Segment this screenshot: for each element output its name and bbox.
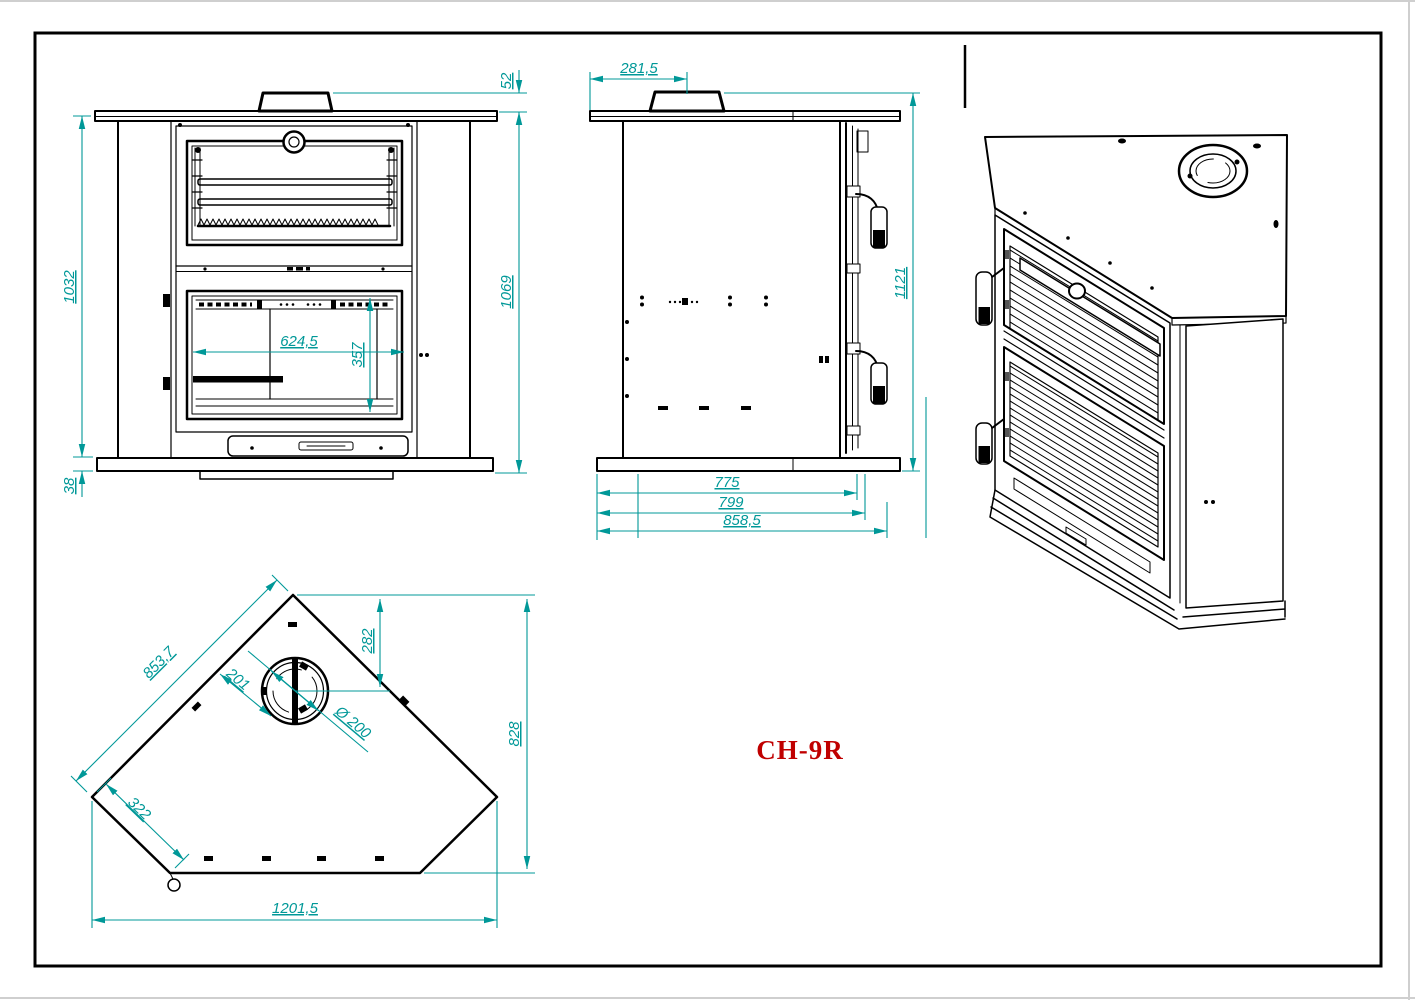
side-panel-fasteners xyxy=(625,296,829,411)
dim-side-depth-mid: 799 xyxy=(718,494,744,511)
front-plinth xyxy=(97,458,493,471)
model-label: CH-9R xyxy=(756,735,844,765)
side-flue-collar xyxy=(650,92,724,111)
oven-rack xyxy=(198,199,392,205)
dim-front-body-height: 1032 xyxy=(61,270,78,304)
dim-front-total-height: 1069 xyxy=(498,275,515,309)
plan-outline xyxy=(92,595,497,873)
dim-plan-overall-width: 1201,5 xyxy=(272,900,319,917)
iso-oven-knob xyxy=(1069,284,1085,299)
side-dimensions: 281,5 1121 775 799 858,5 xyxy=(590,60,926,540)
dim-front-collar-height: 52 xyxy=(498,72,515,89)
technical-drawing: 1032 38 52 1069 624,5 357 xyxy=(0,0,1415,1000)
dim-side-depth-overall: 858,5 xyxy=(723,512,761,529)
plan-caster xyxy=(168,879,180,891)
isometric-view xyxy=(976,135,1287,629)
door-hinge xyxy=(163,377,170,390)
plan-view: 853,7 282 201 Ø 200 322 828 1201,5 xyxy=(71,575,535,928)
dim-side-depth-inner: 775 xyxy=(714,474,740,491)
front-flue-collar xyxy=(259,93,332,111)
iso-side-panel xyxy=(1186,319,1283,608)
side-plinth xyxy=(597,458,900,471)
dim-plan-flue-depth: 282 xyxy=(359,628,376,655)
dim-firebox-height: 357 xyxy=(349,342,366,368)
dim-front-plinth-height: 38 xyxy=(61,477,78,494)
oven-window xyxy=(187,141,402,245)
dim-plan-overall-depth: 828 xyxy=(506,721,523,747)
dim-plan-front-edge: 853,7 xyxy=(140,643,179,682)
dim-side-total-height: 1121 xyxy=(892,267,909,299)
dim-side-flue-offset: 281,5 xyxy=(619,60,658,77)
oven-sawtooth-rack xyxy=(198,219,378,225)
oven-rack xyxy=(198,179,392,185)
dim-firebox-width: 624,5 xyxy=(280,333,318,350)
door-hinge xyxy=(163,294,170,307)
drawing-sheet: 1032 38 52 1069 624,5 357 xyxy=(0,0,1415,1000)
firebox-lever xyxy=(193,376,283,383)
oven-thermometer-knob xyxy=(284,132,305,153)
front-view: 1032 38 52 1069 624,5 357 xyxy=(61,70,527,497)
iso-flue-collar xyxy=(1179,145,1247,197)
side-view: 281,5 1121 775 799 858,5 xyxy=(590,60,926,540)
side-body xyxy=(623,121,840,458)
door-clip xyxy=(857,131,868,152)
